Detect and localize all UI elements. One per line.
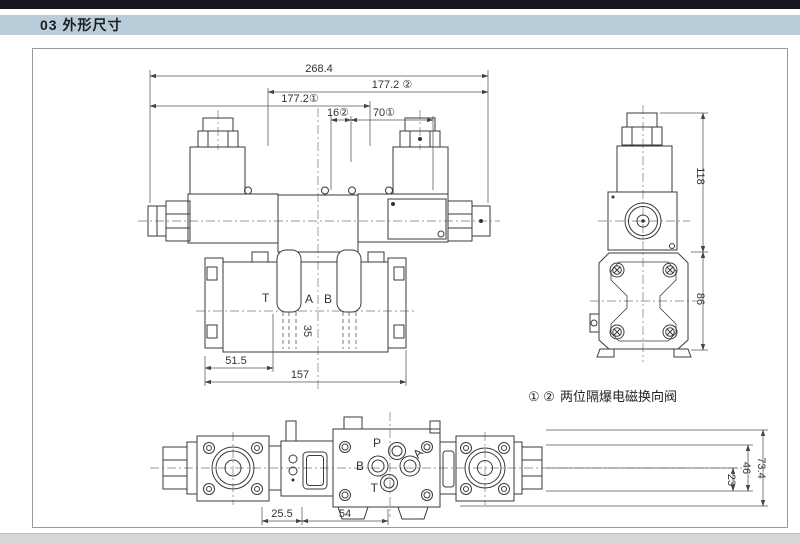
dim-16: 16②	[327, 107, 349, 119]
dim-35: 35	[301, 325, 313, 337]
footer-strip	[0, 533, 800, 544]
side-flange-block	[590, 253, 691, 357]
front-right-housing	[358, 194, 448, 242]
front-view: T A B	[138, 108, 500, 392]
drawing-frame: T A B 268.4 177.2 ② 177.2① 16② 70① 51.5 …	[32, 48, 788, 528]
dim-177-2-left: 177.2①	[281, 93, 319, 105]
front-centerlines	[138, 108, 500, 392]
section-header-bar: 03 外形尺寸	[0, 15, 800, 35]
bottom-port-label-t: T	[371, 481, 379, 495]
front-port-label-t: T	[262, 291, 270, 305]
bottom-port-label-b: B	[356, 459, 364, 473]
side-centerlines	[590, 105, 697, 362]
side-view	[590, 105, 697, 362]
dim-268-4: 268.4	[305, 63, 333, 75]
section-title: 03 外形尺寸	[40, 15, 122, 35]
front-hidden-lines	[283, 312, 356, 349]
dim-51-5: 51.5	[225, 355, 246, 367]
dim-86: 86	[694, 293, 706, 305]
front-port-slot-b	[337, 250, 361, 312]
top-dark-bar	[0, 0, 800, 9]
dim-177-2-right: 177.2 ②	[372, 79, 413, 91]
bottom-left-junction-plate	[281, 441, 333, 496]
side-view-dimensions: 118 86	[660, 113, 708, 350]
dim-46: 46	[740, 462, 752, 474]
front-left-coil	[190, 147, 245, 194]
figure-caption: ① ② 两位隔爆电磁换向阀	[528, 389, 677, 404]
dim-73-4: 73.4	[755, 457, 767, 478]
gland-dot	[418, 137, 422, 141]
technical-drawing: T A B 268.4 177.2 ② 177.2① 16② 70① 51.5 …	[32, 48, 788, 528]
bottom-view-dimensions: 25.5 54 23 46 73.4	[262, 430, 768, 525]
side-solenoid-tube	[617, 146, 672, 192]
front-port-label-b: B	[324, 292, 332, 306]
side-cable-gland	[622, 113, 662, 145]
dim-25-5: 25.5	[271, 508, 292, 520]
dim-54: 54	[339, 508, 351, 520]
bottom-view: P B T A	[150, 412, 744, 519]
dim-157: 157	[291, 369, 309, 381]
front-right-coil	[393, 147, 448, 194]
front-top-screws	[245, 187, 393, 194]
front-nameplate	[388, 199, 446, 239]
caption-text: 两位隔爆电磁换向阀	[560, 389, 677, 404]
bottom-port-label-a: A	[410, 446, 426, 462]
front-view-dimensions: 268.4 177.2 ② 177.2① 16② 70① 51.5 157 35	[150, 63, 488, 386]
dim-118: 118	[694, 167, 706, 185]
caption-ref-numbers: ① ②	[528, 389, 555, 404]
front-left-housing	[188, 194, 278, 243]
dim-23: 23	[725, 474, 737, 486]
bottom-port-label-p: P	[373, 436, 381, 450]
front-port-slot-a	[277, 250, 301, 312]
dim-70: 70①	[373, 107, 395, 119]
front-port-label-a: A	[305, 292, 313, 306]
